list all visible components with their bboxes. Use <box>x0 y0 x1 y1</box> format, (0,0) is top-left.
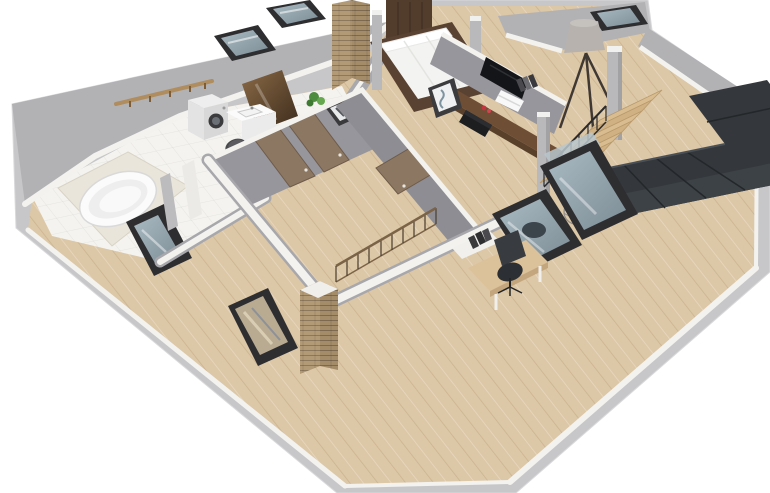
floor-plan-canvas <box>0 0 770 493</box>
brick-chimney-bedroom <box>332 0 370 90</box>
candle <box>482 106 487 111</box>
door-knob <box>402 184 405 187</box>
door-knob <box>304 168 307 171</box>
washing-machine <box>188 94 228 140</box>
faucet <box>251 107 254 110</box>
support-post-1 <box>372 10 382 90</box>
candle <box>487 109 491 113</box>
floor-plan-render <box>0 0 770 493</box>
door-knob <box>338 153 341 156</box>
brick-chimney-hall <box>300 281 338 374</box>
